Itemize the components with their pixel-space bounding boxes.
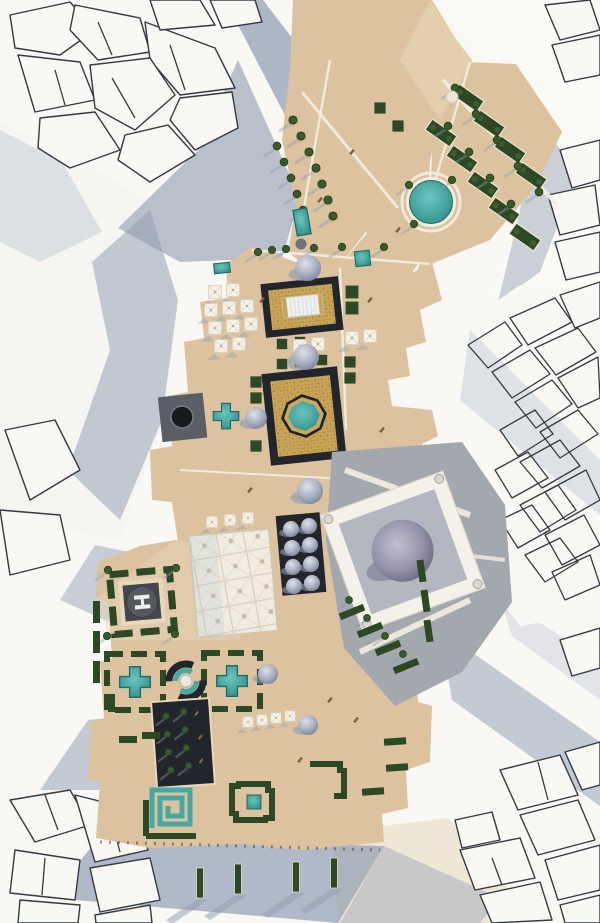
hedge-planter [277, 359, 287, 369]
hedge-planter [250, 392, 261, 403]
hedge-planter [374, 102, 385, 113]
hedge-planter [344, 356, 355, 367]
courtyard-upper [260, 276, 343, 338]
courtyard-central [261, 366, 346, 465]
hedge-planter [250, 440, 261, 451]
canopy-grid [189, 529, 278, 638]
dome-row [276, 512, 327, 596]
hedge-planter [344, 372, 355, 383]
aerial-view: H [0, 0, 600, 923]
helipad-label: H [129, 592, 154, 612]
hedge-planter [346, 286, 359, 299]
hedge-planter [277, 339, 287, 349]
hedge-planter [346, 302, 359, 315]
sunken-courtyard [151, 698, 215, 788]
masterplan-render: H [0, 0, 600, 923]
hedge-planter [250, 376, 261, 387]
hedge-planter [392, 120, 403, 131]
dark-pavilion [158, 393, 207, 442]
